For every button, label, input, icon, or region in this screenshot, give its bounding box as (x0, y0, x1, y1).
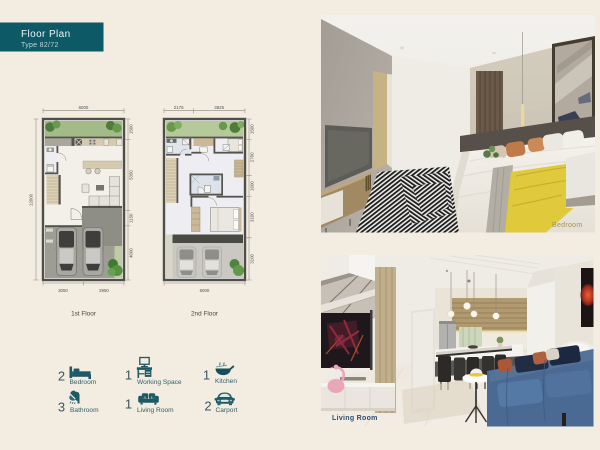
svg-text:12000: 12000 (29, 193, 34, 206)
svg-text:2175: 2175 (174, 105, 184, 110)
svg-text:1500: 1500 (249, 124, 254, 134)
svg-text:2700: 2700 (249, 152, 254, 162)
svg-text:Living Room: Living Room (137, 407, 174, 414)
svg-text:4000: 4000 (128, 248, 133, 258)
svg-text:3: 3 (58, 400, 65, 415)
svg-text:1: 1 (125, 368, 132, 383)
svg-text:2: 2 (58, 369, 65, 384)
svg-text:2nd Floor: 2nd Floor (191, 311, 219, 318)
svg-text:Living Room: Living Room (332, 415, 378, 422)
svg-text:1st Floor: 1st Floor (71, 311, 97, 318)
svg-text:5350: 5350 (128, 170, 133, 180)
svg-text:Type 82/72: Type 82/72 (21, 42, 59, 49)
svg-text:1: 1 (125, 397, 132, 412)
svg-text:3100: 3100 (249, 212, 254, 222)
svg-text:1150: 1150 (128, 213, 133, 223)
svg-text:1600: 1600 (249, 181, 254, 191)
svg-text:Floor Plan: Floor Plan (21, 29, 71, 40)
svg-text:Bathroom: Bathroom (70, 407, 99, 414)
svg-text:Carport: Carport (216, 407, 238, 414)
svg-text:1500: 1500 (128, 124, 133, 134)
svg-text:3100: 3100 (249, 253, 254, 263)
svg-text:2950: 2950 (99, 288, 109, 293)
svg-text:6000: 6000 (79, 105, 89, 110)
svg-text:Bedroom: Bedroom (552, 222, 583, 229)
svg-text:Working Space: Working Space (137, 379, 182, 386)
svg-text:3825: 3825 (214, 105, 224, 110)
svg-text:1: 1 (203, 368, 210, 383)
svg-text:Bedroom: Bedroom (70, 379, 97, 386)
svg-text:6000: 6000 (200, 288, 210, 293)
svg-text:2: 2 (204, 399, 211, 414)
svg-text:Kitchen: Kitchen (215, 378, 237, 385)
svg-text:3050: 3050 (58, 288, 68, 293)
